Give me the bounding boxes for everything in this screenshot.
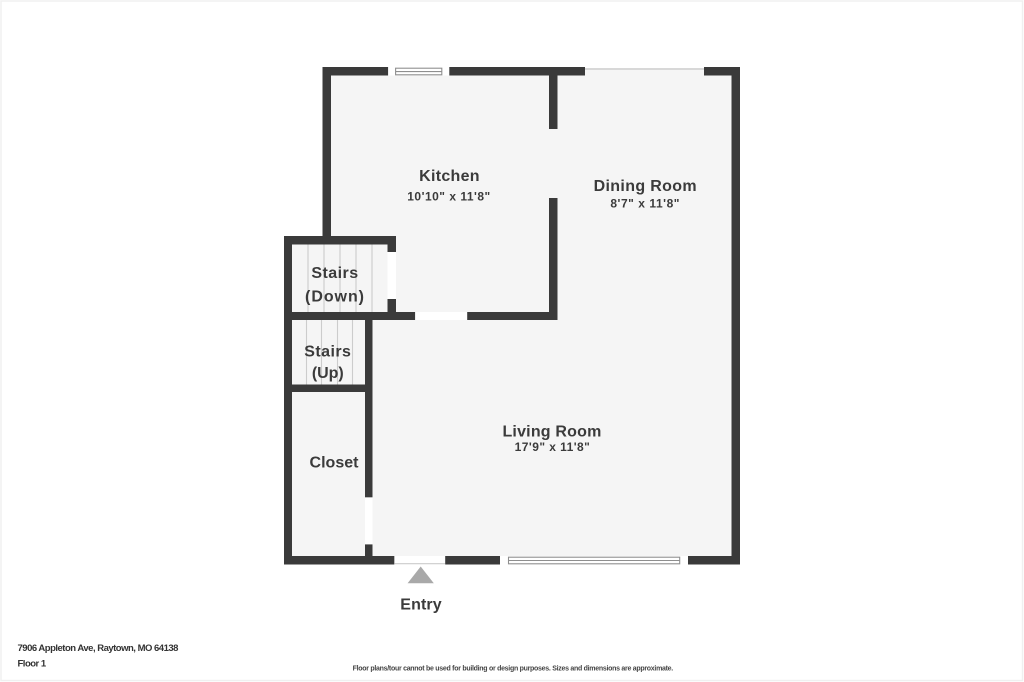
svg-text:Dining Room: Dining Room <box>594 178 697 195</box>
svg-text:8'7" x 11'8": 8'7" x 11'8" <box>610 196 680 210</box>
svg-text:Kitchen: Kitchen <box>419 168 480 185</box>
svg-text:Floor plans/tour cannot be use: Floor plans/tour cannot be used for buil… <box>353 665 674 672</box>
svg-text:Entry: Entry <box>400 597 441 614</box>
svg-text:Floor 1: Floor 1 <box>18 659 47 670</box>
svg-text:17'9" x 11'8": 17'9" x 11'8" <box>515 440 591 454</box>
svg-text:Stairs: Stairs <box>304 344 351 361</box>
svg-text:10'10" x 11'8": 10'10" x 11'8" <box>407 189 490 203</box>
svg-text:7906 Appleton Ave, Raytown, MO: 7906 Appleton Ave, Raytown, MO 64138 <box>18 643 179 654</box>
svg-text:(Down): (Down) <box>305 289 365 306</box>
svg-text:(Up): (Up) <box>312 365 344 382</box>
svg-text:Stairs: Stairs <box>311 265 358 282</box>
svg-text:Closet: Closet <box>310 455 360 472</box>
svg-text:Living Room: Living Room <box>502 424 601 441</box>
